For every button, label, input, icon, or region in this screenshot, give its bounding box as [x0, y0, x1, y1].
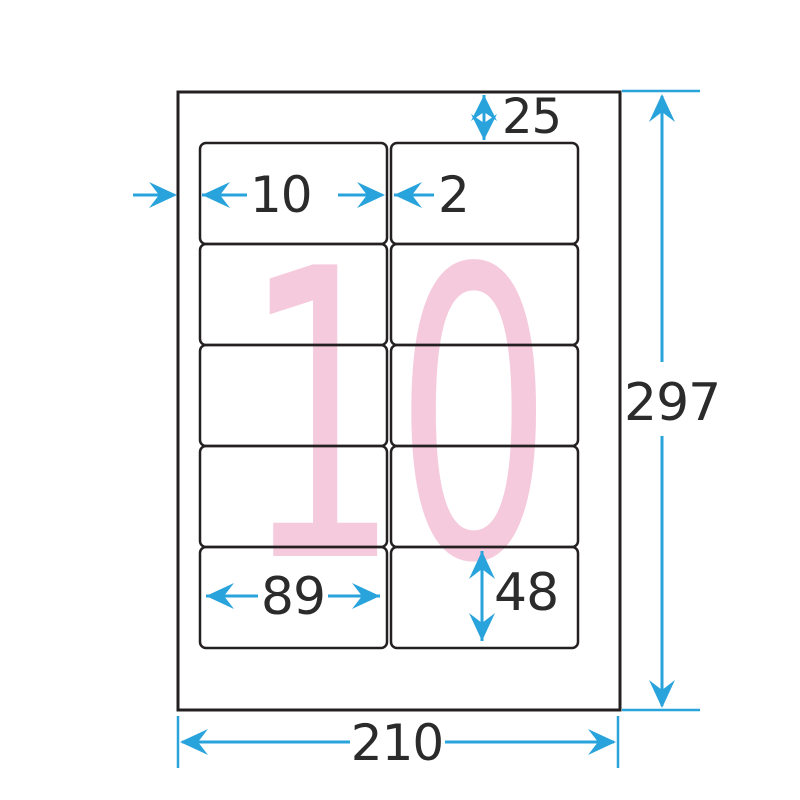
dim-value-column-gap: 2 [438, 166, 469, 224]
dim-value-label-width: 89 [261, 567, 325, 627]
dim-value-label-height: 48 [494, 563, 558, 623]
label-sheet-diagram: 10 25 10 2 89 48 [0, 0, 800, 800]
dim-value-side-margin: 10 [250, 166, 312, 224]
dim-value-sheet-height: 297 [624, 373, 720, 433]
dim-value-top-margin: 25 [502, 89, 561, 145]
dim-top-margin: 25 [471, 89, 561, 145]
dim-value-sheet-width: 210 [351, 714, 443, 772]
